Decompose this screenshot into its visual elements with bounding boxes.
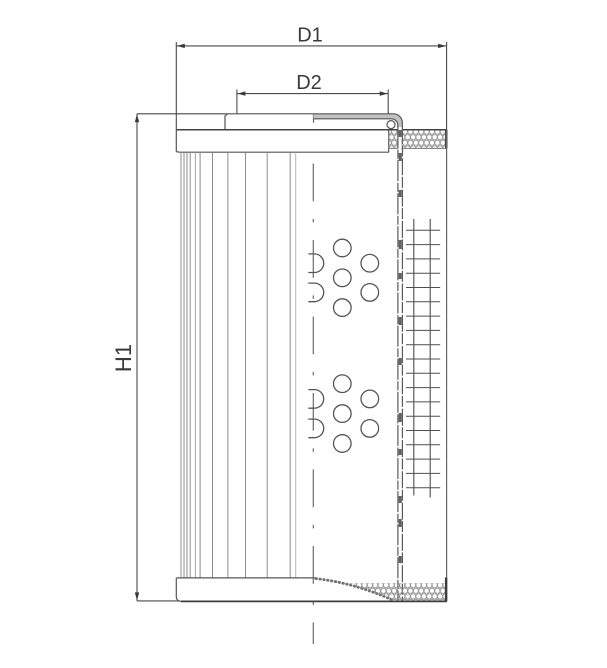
svg-text:H1: H1 bbox=[111, 344, 136, 372]
svg-text:D1: D1 bbox=[297, 25, 323, 47]
svg-text:D2: D2 bbox=[296, 72, 322, 94]
